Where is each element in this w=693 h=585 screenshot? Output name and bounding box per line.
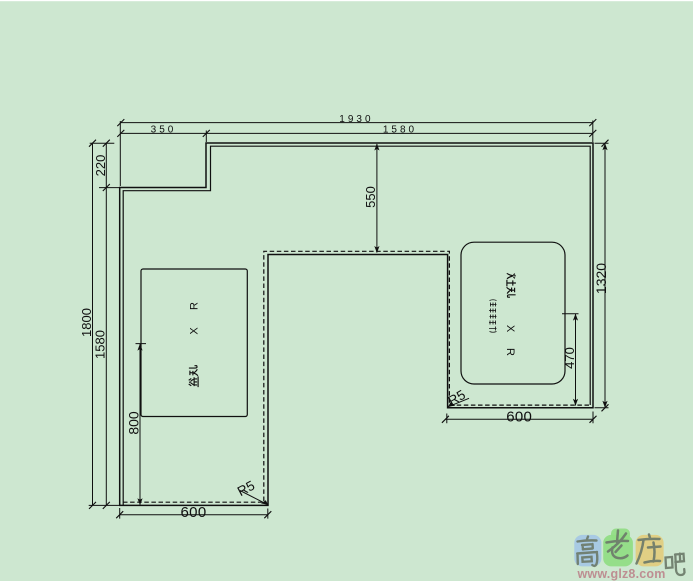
- svg-text:470: 470: [562, 347, 577, 369]
- svg-text:1930: 1930: [339, 114, 373, 125]
- svg-text:600: 600: [506, 409, 532, 426]
- svg-text:R: R: [504, 348, 516, 356]
- svg-text:220: 220: [93, 155, 108, 177]
- svg-text:X: X: [504, 325, 516, 333]
- svg-text:350: 350: [151, 125, 177, 136]
- svg-text:1320: 1320: [593, 263, 609, 294]
- svg-text:800: 800: [126, 411, 142, 435]
- svg-text:R: R: [189, 302, 201, 310]
- svg-text:600: 600: [181, 504, 207, 521]
- svg-text:550: 550: [363, 186, 378, 208]
- svg-text:1580: 1580: [383, 125, 417, 136]
- svg-text:X: X: [189, 327, 201, 335]
- svg-text:1580: 1580: [93, 330, 108, 359]
- svg-text:www.glz8.com: www.glz8.com: [577, 567, 666, 581]
